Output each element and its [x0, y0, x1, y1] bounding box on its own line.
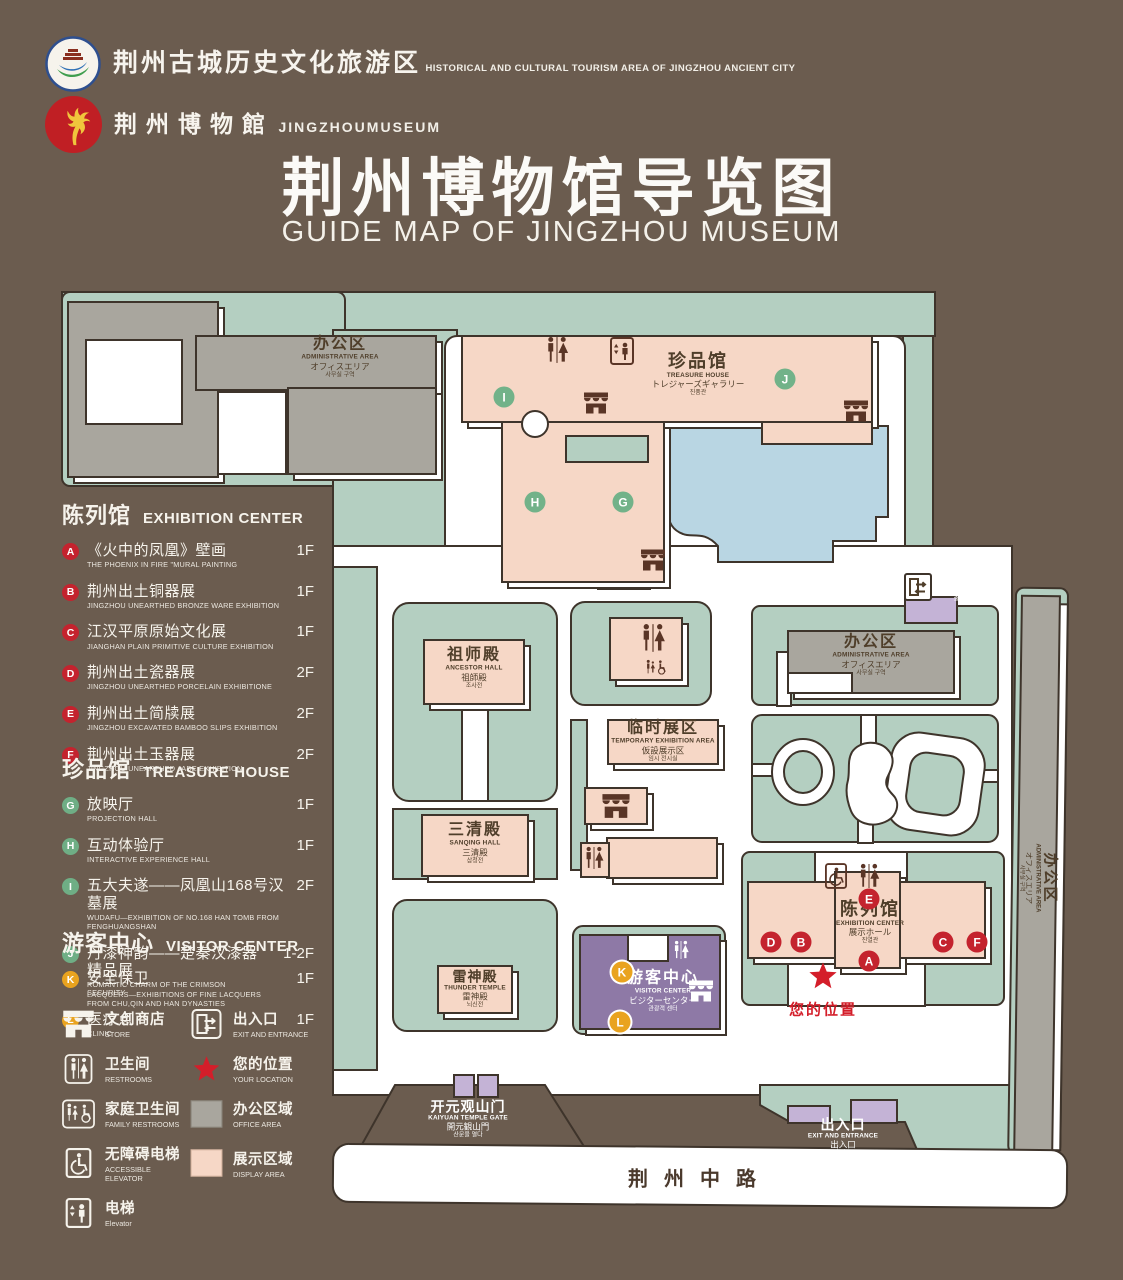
label-thunder-temple: 雷神殿THUNDER TEMPLE 雷神殿뇌신전	[444, 968, 506, 1009]
map-marker-L: L	[610, 1012, 631, 1033]
gate-pillar-1	[454, 1075, 474, 1097]
section-title-en: EXHIBITION CENTER	[143, 510, 303, 527]
exit-door-icon	[190, 1009, 223, 1039]
floor-label: 1F	[290, 796, 314, 813]
marker-badge: E	[62, 706, 79, 723]
map-marker-F: F	[967, 932, 988, 953]
store-icon	[583, 392, 609, 415]
store-icon	[601, 793, 631, 819]
label-admin-strip: 办公区 ADMINISTRATIVE AREA オフィスエリア 사무실 구역	[1018, 844, 1059, 913]
map-marker-B: B	[791, 932, 812, 953]
your-location-star-icon	[807, 960, 839, 992]
map-marker-A: A	[859, 951, 880, 972]
accessible-elevator-icon	[825, 863, 847, 889]
map-marker-E: E	[859, 889, 880, 910]
label-admin-area-east: 办公区ADMINISTRATIVE AREA オフィスエリア사무실 구역	[832, 633, 909, 676]
map-marker-G: G	[613, 492, 634, 513]
label-road: 荆州中路	[628, 1163, 772, 1192]
restroom-icon	[672, 940, 690, 960]
label-admin-area-nw: 办公区ADMINISTRATIVE AREA オフィスエリア사무실 구역	[301, 335, 378, 378]
map-marker-H: H	[525, 492, 546, 513]
legend-item-H: H 互动体验厅INTERACTIVE EXPERIENCE HALL 1F	[62, 837, 314, 865]
lawn-left-strip	[333, 567, 377, 1070]
garden	[752, 715, 998, 843]
legend-item-G: G 放映厅PROJECTION HALL 1F	[62, 796, 314, 824]
store-icon	[688, 980, 714, 1003]
legend-symbols: 文创商店STORE 出入口EXIT AND ENTRANCE 卫生间RESTRO…	[62, 1008, 328, 1228]
legend-section-exhibition-center: 陈列馆 EXHIBITION CENTER A 《火中的凤凰》壁画THE PHO…	[62, 498, 314, 786]
legend-office-area: 办公区域OFFICE AREA	[190, 1098, 328, 1129]
legend-family-restroom: 家庭卫生间FAMILY RESTROOMS	[62, 1098, 190, 1129]
map-marker-K: K	[612, 962, 633, 983]
floor-label: 2F	[290, 705, 314, 722]
accessible-elevator-icon	[62, 1148, 95, 1178]
page-subtitle: GUIDE MAP OF JINGZHOU MUSEUM	[0, 216, 1123, 249]
marker-badge: H	[62, 838, 79, 855]
legend-accessible-elevator: 无障碍电梯ACCESSIBLE ELEVATOR	[62, 1143, 190, 1183]
floor-label: 1F	[290, 837, 314, 854]
legend-item-B: B 荆州出土铜器展JINGZHOU UNEARTHED BRONZE WARE …	[62, 583, 314, 611]
legend-item-E: E 荆州出土简牍展JINGZHOU EXCAVATED BAMBOO SLIPS…	[62, 705, 314, 733]
family-restroom-icon	[643, 660, 671, 675]
legend-item-K: K 安全保卫SECURITY 1F	[62, 970, 314, 998]
legend-display-area: 展示区域DISPLAY AREA	[190, 1143, 328, 1183]
legend-restroom: 卫生间RESTROOMS	[62, 1053, 190, 1084]
marker-badge: B	[62, 584, 79, 601]
section-title-en: TREASURE HOUSE	[143, 764, 290, 781]
marker-badge: A	[62, 543, 79, 560]
exit-door-icon	[904, 573, 932, 601]
label-treasure-house: 珍品馆TREASURE HOUSE トレジャーズギャラリー진품관	[652, 351, 745, 397]
marker-badge: I	[62, 878, 79, 895]
label-exit-se: 出入口EXIT AND ENTRANCE 出入口출입구	[808, 1116, 878, 1157]
gate-pillar-2	[478, 1075, 498, 1097]
restroom-icon	[639, 623, 667, 653]
map-marker-D: D	[761, 932, 782, 953]
section-title-en: VISITOR CENTER	[166, 938, 299, 955]
floor-label: 1F	[290, 970, 314, 987]
section-title-zh: 陈列馆	[62, 498, 131, 530]
restroom-icon	[544, 336, 570, 364]
org-logo-zh: 荆州古城历史文化旅游区	[113, 49, 421, 77]
label-exit-ne: 出入口EXIT AND ENTRANCE 出入口출입구	[927, 562, 997, 603]
label-kaiyuan-gate: 开元观山门KAIYUAN TEMPLE GATE 開元観山門산문을 열다	[428, 1098, 508, 1139]
legend-elevator: 电梯Elevator	[62, 1197, 190, 1228]
marker-badge: C	[62, 624, 79, 641]
floor-label: 1F	[290, 583, 314, 600]
elevator-icon	[62, 1198, 95, 1228]
floor-label: 1F	[290, 542, 314, 559]
legend-item-C: C 江汉平原原始文化展JIANGHAN PLAIN PRIMITIVE CULT…	[62, 623, 314, 651]
store-icon	[62, 1009, 95, 1039]
museum-logo-en: JINGZHOUMUSEUM	[278, 119, 441, 135]
restroom-icon	[62, 1054, 95, 1084]
section-title-zh: 游客中心	[62, 926, 154, 958]
label-your-location: 您的位置	[789, 999, 857, 1020]
store-icon	[843, 400, 869, 423]
org-logo: 荆州古城历史文化旅游区 HISTORICAL AND CULTURAL TOUR…	[45, 36, 795, 92]
family-restroom-icon	[62, 1099, 95, 1129]
map-marker-J: J	[775, 369, 796, 390]
map-marker-C: C	[933, 932, 954, 953]
office-area-swatch	[190, 1099, 223, 1129]
legend-exit: 出入口EXIT AND ENTRANCE	[190, 1008, 328, 1039]
legend-item-D: D 荆州出土瓷器展JINGZHOU UNEARTHED PORCELAIN EX…	[62, 664, 314, 692]
marker-badge: G	[62, 797, 79, 814]
restroom-icon	[583, 846, 605, 870]
display-area-swatch	[190, 1148, 223, 1178]
elevator-icon	[610, 337, 634, 365]
label-sanqing-hall: 三清殿SANQING HALL 三清殿삼청전	[448, 821, 502, 864]
floor-label: 2F	[290, 664, 314, 681]
floor-label: 1F	[290, 623, 314, 640]
section-title-zh: 珍品馆	[62, 752, 131, 784]
legend-item-A: A 《火中的凤凰》壁画THE PHOENIX IN FIRE "MURAL PA…	[62, 542, 314, 570]
floor-label: 2F	[290, 877, 314, 894]
legend-item-I: I 五大夫遂——凤凰山168号汉墓展WUDAFU—EXHIBITION OF N…	[62, 877, 314, 931]
org-logo-emblem-icon	[45, 36, 101, 92]
museum-logo-zh: 荆州博物館	[114, 111, 274, 137]
map-marker-I: I	[494, 387, 515, 408]
org-logo-en: HISTORICAL AND CULTURAL TOURISM AREA OF …	[425, 63, 795, 74]
marker-badge: D	[62, 665, 79, 682]
restroom-icon	[857, 863, 881, 889]
label-temporary-exhibition: 临时展区TEMPORARY EXHIBITION AREA 仮設展示区임시 전시…	[611, 719, 714, 762]
marker-badge: K	[62, 971, 79, 988]
store-icon	[640, 549, 666, 572]
label-ancestor-hall: 祖师殿ANCESTOR HALL 祖師殿조사전	[445, 646, 502, 689]
location-star-icon	[190, 1054, 223, 1084]
legend-your-location: 您的位置YOUR LOCATION	[190, 1053, 328, 1084]
legend-store: 文创商店STORE	[62, 1008, 190, 1039]
